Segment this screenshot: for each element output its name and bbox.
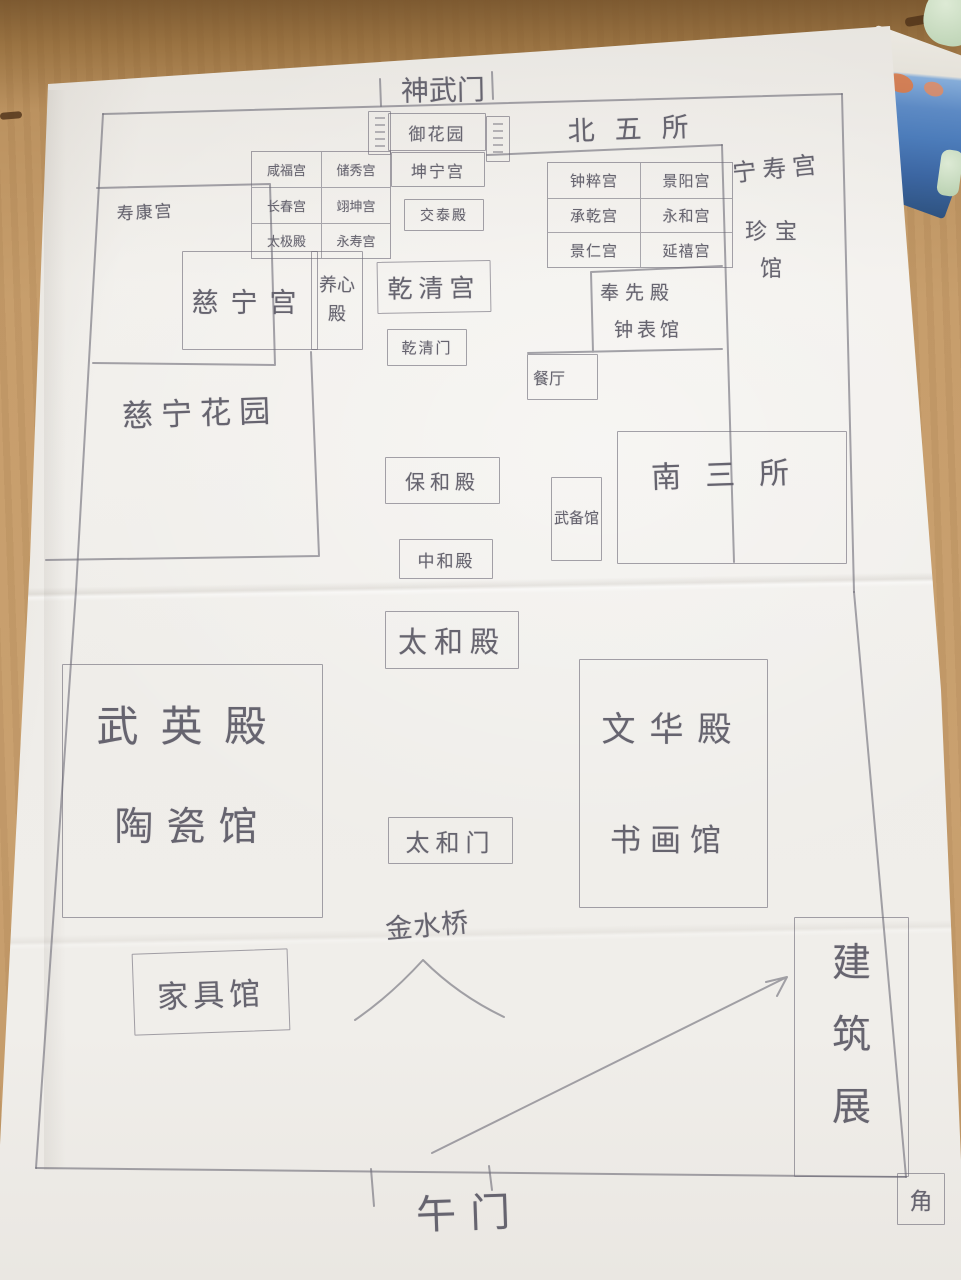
wenhuadian-label: 文华殿 <box>580 702 767 751</box>
wuyingdian-label: 武英殿 <box>63 693 322 754</box>
wenhuadian-shuhuaguan-box: 文华殿 书画馆 <box>579 659 768 908</box>
palace-cell: 翊坤宫 <box>321 187 390 222</box>
fengxiandian-block: 奉先殿 钟表馆 <box>592 272 722 350</box>
arrow-to-jianzhuzhan <box>432 977 787 1153</box>
shenwumen-gate-label: 神武门 <box>388 69 499 109</box>
baohedian-box: 保和殿 <box>385 457 500 504</box>
jinshuiqiao-bridge-mark <box>355 960 504 1020</box>
taihedian-box: 太和殿 <box>385 611 519 669</box>
palace-cell: 景仁宫 <box>548 232 640 267</box>
qianqinggong-box: 乾清宫 <box>377 260 492 314</box>
photo-of-hand-drawn-map: 神武门 御花园 坤宁宫 北五所 咸福宫 储秀宫 长春宫 翊坤宫 太极殿 永寿宫 … <box>0 0 961 1280</box>
beiwusuo-label: 北五所 <box>542 100 733 153</box>
palace-cell: 延禧宫 <box>640 232 732 267</box>
canting-box: 餐厅 <box>527 354 598 400</box>
palace-cell: 永和宫 <box>640 198 732 233</box>
map-border-bottom <box>36 1168 906 1177</box>
palace-cell: 长春宫 <box>252 187 321 222</box>
palace-cell: 储秀宫 <box>321 152 390 187</box>
qianqingmen-box: 乾清门 <box>387 329 467 366</box>
cininghuayuan-label: 慈宁花园 <box>99 371 301 450</box>
palace-cell: 钟粹宫 <box>548 163 640 198</box>
zhonghedian-box: 中和殿 <box>399 539 493 579</box>
yangxindian-box: 养心殿 <box>311 251 363 350</box>
taociguan-label: 陶瓷馆 <box>63 796 322 852</box>
west-six-palaces-grid: 咸福宫 储秀宫 长春宫 翊坤宫 太极殿 永寿宫 <box>251 151 391 259</box>
shuhuaguan-label: 书画馆 <box>610 815 767 860</box>
yuhuayuan-side-annex-left <box>368 111 391 155</box>
jiajuguan-box: 家具馆 <box>132 948 291 1035</box>
yuhuayuan-box: 御花园 <box>388 113 486 151</box>
shenwumen-bracket-left <box>380 79 381 106</box>
wumen-gate-label: 午门 <box>399 1176 541 1245</box>
cininggong-box: 慈宁宫 <box>182 251 318 350</box>
wuyingdian-taociguan-box: 武英殿 陶瓷馆 <box>62 664 323 918</box>
jinshuiqiao-label: 金水桥 <box>369 893 485 953</box>
jiaotaidian-box: 交泰殿 <box>404 199 484 231</box>
zhongbiaoguan-label: 钟表馆 <box>614 315 722 342</box>
kunninggong-box: 坤宁宫 <box>391 152 485 187</box>
nansansuo-box: 南三所 <box>617 431 847 564</box>
wumen-tick-left <box>371 1169 374 1206</box>
wubeiguan-box: 武备馆 <box>551 477 602 561</box>
palace-cell: 景阳宫 <box>640 163 732 198</box>
jianzhuzhan-box: 建筑展 <box>794 917 909 1177</box>
corner-tower-box: 角 <box>897 1173 945 1225</box>
east-six-palaces-grid: 钟粹宫 景阳宫 承乾宫 永和宫 景仁宫 延禧宫 <box>547 162 733 268</box>
map-border-left <box>36 114 103 1168</box>
zhenbaoguan-label: 珍宝馆 <box>741 203 809 299</box>
fengxiandian-label: 奉先殿 <box>600 278 722 305</box>
jianzhuzhan-label: 建筑展 <box>829 928 875 1144</box>
shoukanggong-label: 寿康宫 <box>98 190 192 231</box>
palace-cell: 承乾宫 <box>548 198 640 233</box>
taihemen-box: 太和门 <box>388 817 513 864</box>
yuhuayuan-side-annex-right <box>486 116 510 162</box>
palace-cell: 咸福宫 <box>252 152 321 187</box>
nansansuo-label: 南三所 <box>617 446 846 498</box>
